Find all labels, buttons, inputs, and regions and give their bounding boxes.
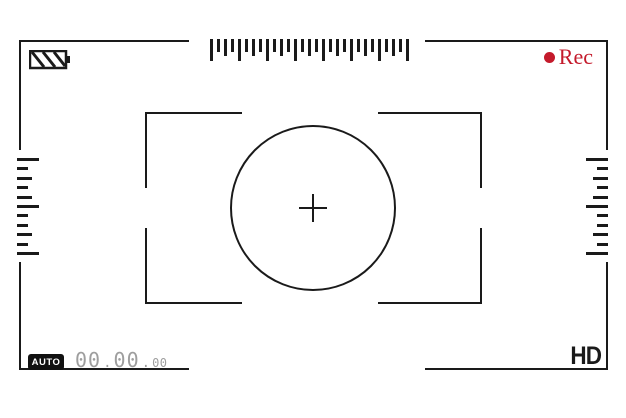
focus-frame-left-top-segment [145, 112, 147, 188]
rec-label: Rec [559, 46, 593, 68]
ruler-tick [597, 224, 608, 227]
outer-frame-left-bottom-segment [19, 262, 21, 370]
ruler-tick [231, 39, 234, 52]
ruler-tick [597, 167, 608, 170]
record-dot-icon [544, 52, 555, 63]
outer-frame-top-left-segment [19, 40, 189, 42]
ruler-tick [301, 39, 304, 52]
auto-mode-badge[interactable]: AUTO [28, 354, 64, 370]
ruler-tick [593, 196, 608, 199]
exposure-scale-top [210, 39, 409, 61]
ruler-tick [210, 39, 213, 61]
ruler-tick [259, 39, 262, 52]
ruler-tick [17, 177, 32, 180]
focus-scale-left [17, 158, 39, 255]
ruler-tick [17, 186, 28, 189]
ruler-tick [385, 39, 388, 52]
ruler-tick [273, 39, 276, 52]
focus-frame-left-bottom-segment [145, 228, 147, 304]
ruler-tick [593, 177, 608, 180]
battery-icon [29, 50, 71, 75]
ruler-tick [350, 39, 353, 61]
outer-frame-right-bottom-segment [606, 262, 608, 370]
ruler-tick [597, 186, 608, 189]
crosshair-icon [312, 194, 314, 222]
focus-frame-bottom-right-segment [378, 302, 482, 304]
ruler-tick [17, 205, 39, 208]
ruler-tick [586, 252, 608, 255]
ruler-tick [17, 158, 39, 161]
ruler-tick [336, 39, 339, 56]
ruler-tick [371, 39, 374, 52]
ruler-tick [17, 243, 28, 246]
ruler-tick [378, 39, 381, 61]
focus-frame-right-top-segment [480, 112, 482, 188]
ruler-tick [17, 214, 28, 217]
ruler-tick [357, 39, 360, 52]
ruler-tick [17, 252, 39, 255]
timecode-separator: . [142, 355, 150, 371]
timecode-seconds: 00 [152, 356, 167, 370]
ruler-tick [308, 39, 311, 56]
ruler-tick [322, 39, 325, 61]
outer-frame-right-top-segment [606, 40, 608, 150]
ruler-tick [364, 39, 367, 56]
ruler-tick [315, 39, 318, 52]
ruler-tick [329, 39, 332, 52]
ruler-tick [245, 39, 248, 52]
timecode-separator: . [103, 355, 111, 371]
ruler-tick [593, 233, 608, 236]
ruler-tick [17, 233, 32, 236]
focus-frame-bottom-left-segment [145, 302, 242, 304]
ruler-tick [252, 39, 255, 56]
ruler-tick [266, 39, 269, 61]
focus-frame-right-bottom-segment [480, 228, 482, 304]
focus-scale-right [586, 158, 608, 255]
ruler-tick [392, 39, 395, 56]
ruler-tick [597, 214, 608, 217]
timecode: 00 . 00 . 00 [75, 348, 168, 372]
ruler-tick [224, 39, 227, 56]
ruler-tick [586, 205, 608, 208]
ruler-tick [406, 39, 409, 61]
focus-frame-top-right-segment [378, 112, 482, 114]
ruler-tick [343, 39, 346, 52]
ruler-tick [238, 39, 241, 61]
ruler-tick [217, 39, 220, 52]
ruler-tick [294, 39, 297, 61]
ruler-tick [17, 196, 32, 199]
outer-frame-left-top-segment [19, 40, 21, 150]
hd-quality-label[interactable]: HD [570, 342, 601, 371]
ruler-tick [597, 243, 608, 246]
ruler-tick [17, 224, 28, 227]
ruler-tick [280, 39, 283, 56]
timecode-minutes: 00 [114, 348, 140, 372]
ruler-tick [586, 158, 608, 161]
focus-frame-top-left-segment [145, 112, 242, 114]
ruler-tick [17, 167, 28, 170]
timecode-hours: 00 [75, 348, 101, 372]
rec-indicator[interactable]: Rec [544, 46, 593, 68]
ruler-tick [287, 39, 290, 52]
ruler-tick [399, 39, 402, 52]
outer-frame-top-right-segment [425, 40, 608, 42]
camera-viewfinder: Rec AUTO 00 . 00 . 00 HD [0, 0, 626, 418]
